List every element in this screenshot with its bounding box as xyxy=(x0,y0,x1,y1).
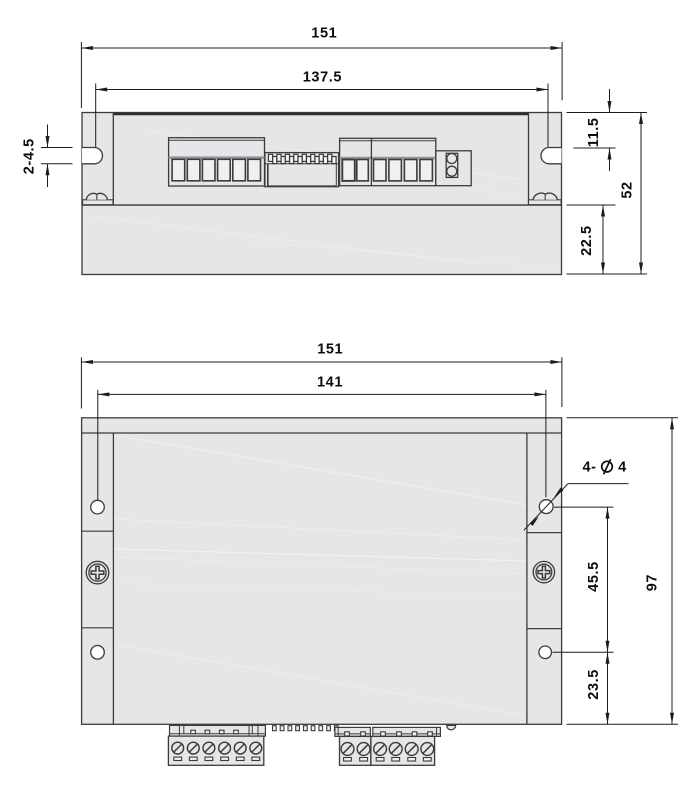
svg-text:2-4.5: 2-4.5 xyxy=(21,138,37,174)
svg-text:141: 141 xyxy=(317,374,343,390)
svg-text:4-: 4- xyxy=(582,460,596,476)
svg-text:97: 97 xyxy=(645,574,661,591)
svg-text:52: 52 xyxy=(619,181,635,198)
svg-text:11.5: 11.5 xyxy=(586,117,602,147)
svg-text:151: 151 xyxy=(317,342,343,358)
svg-text:45.5: 45.5 xyxy=(586,561,602,592)
svg-text:4: 4 xyxy=(618,460,627,476)
svg-text:22.5: 22.5 xyxy=(579,225,595,256)
svg-text:151: 151 xyxy=(311,25,337,41)
svg-text:23.5: 23.5 xyxy=(586,669,602,700)
svg-text:137.5: 137.5 xyxy=(303,69,342,85)
